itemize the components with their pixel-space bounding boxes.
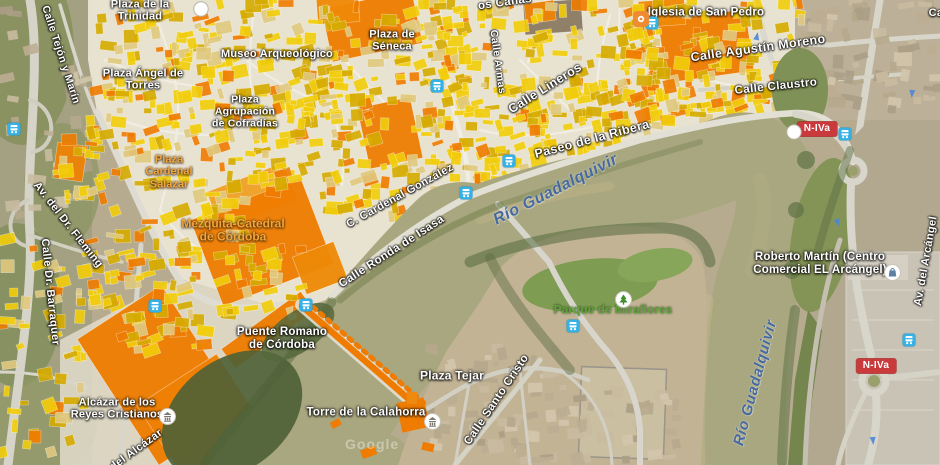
poi-label-line: Plaza bbox=[145, 154, 192, 166]
poi-label-line: Reyes Cristianos bbox=[71, 409, 163, 421]
bus-glyph bbox=[8, 123, 21, 136]
poi-label-line: de Córdoba bbox=[181, 231, 284, 244]
bus-glyph bbox=[567, 320, 580, 333]
poi-label-line: Iglesia de San Pedro bbox=[648, 7, 764, 20]
bus-glyph bbox=[149, 300, 162, 313]
poi-label[interactable]: Puente Romanode Córdoba bbox=[237, 326, 327, 352]
map-viewport[interactable]: Av. del Dr. FlemingCalle Dr. BarraquerCa… bbox=[0, 0, 940, 465]
poi-label[interactable]: Plaza Ángel deTorres bbox=[103, 68, 183, 93]
bus-stop-icon[interactable] bbox=[460, 187, 473, 200]
poi-label-line: Plaza de bbox=[369, 29, 415, 41]
poi-label[interactable]: Alcázar de losReyes Cristianos bbox=[71, 397, 163, 422]
bus-stop-icon[interactable] bbox=[503, 155, 516, 168]
poi-label-line: Plaza bbox=[212, 94, 278, 106]
poi-label-line: Trinidad bbox=[111, 11, 169, 23]
bus-glyph bbox=[839, 128, 852, 141]
poi-label-line: Cardenal bbox=[145, 166, 192, 178]
poi-label-line: de Córdoba bbox=[237, 339, 327, 352]
poi-label[interactable]: PlazaCardenalSalazar bbox=[145, 154, 192, 191]
poi-label-line: Séneca bbox=[369, 41, 415, 53]
poi-label[interactable]: Plaza Tejar bbox=[420, 369, 484, 382]
poi-label-line: Alcázar de los bbox=[71, 397, 163, 409]
bus-glyph bbox=[503, 155, 516, 168]
poi-label-line: Plaza Tejar bbox=[420, 369, 484, 382]
bus-glyph bbox=[431, 80, 444, 93]
poi-label-line: Plaza de la bbox=[111, 0, 169, 11]
poi-label[interactable]: PlazaAgrupaciónde Cofradías bbox=[212, 94, 278, 129]
poi-label-line: Agrupación bbox=[212, 106, 278, 118]
bus-stop-icon[interactable] bbox=[839, 128, 852, 141]
poi-label-line: Roberto Martín (Centro bbox=[753, 251, 887, 264]
poi-label[interactable]: Plaza de laTrinidad bbox=[111, 0, 169, 23]
poi-label[interactable]: Mezquita-Catedralde Córdoba bbox=[181, 218, 284, 245]
poi-label-line: Museo Arqueológico bbox=[221, 48, 333, 60]
bus-glyph bbox=[460, 187, 473, 200]
poi-label-line: Puente Romano bbox=[237, 326, 327, 339]
poi-label-line: de Cofradías bbox=[212, 118, 278, 130]
poi-label-line: Torre de la Calahorra bbox=[306, 407, 425, 420]
poi-label[interactable]: Parque de Miraflores bbox=[554, 303, 673, 316]
bus-stop-icon[interactable] bbox=[8, 123, 21, 136]
bus-stop-icon[interactable] bbox=[300, 299, 313, 312]
poi-label[interactable]: Torre de la Calahorra bbox=[306, 407, 425, 420]
poi-label-line: Plaza Ángel de bbox=[103, 68, 183, 80]
poi-label-line: Torres bbox=[103, 80, 183, 92]
poi-label-line: Salazar bbox=[145, 178, 192, 190]
bus-stop-icon[interactable] bbox=[567, 320, 580, 333]
poi-label[interactable]: Iglesia de San Pedro bbox=[648, 7, 764, 20]
bus-stop-icon[interactable] bbox=[903, 334, 916, 347]
poi-label-line: Comercial EL Arcángel) bbox=[753, 264, 887, 277]
poi-label[interactable]: Plaza deSéneca bbox=[369, 29, 415, 54]
poi-label-line: Parque de Miraflores bbox=[554, 303, 673, 316]
bus-glyph bbox=[903, 334, 916, 347]
bus-stop-icon[interactable] bbox=[149, 300, 162, 313]
poi-label[interactable]: Roberto Martín (CentroComercial EL Arcán… bbox=[753, 251, 887, 277]
bus-stop-icon[interactable] bbox=[431, 80, 444, 93]
bus-glyph bbox=[300, 299, 313, 312]
poi-label[interactable]: Museo Arqueológico bbox=[221, 48, 333, 60]
